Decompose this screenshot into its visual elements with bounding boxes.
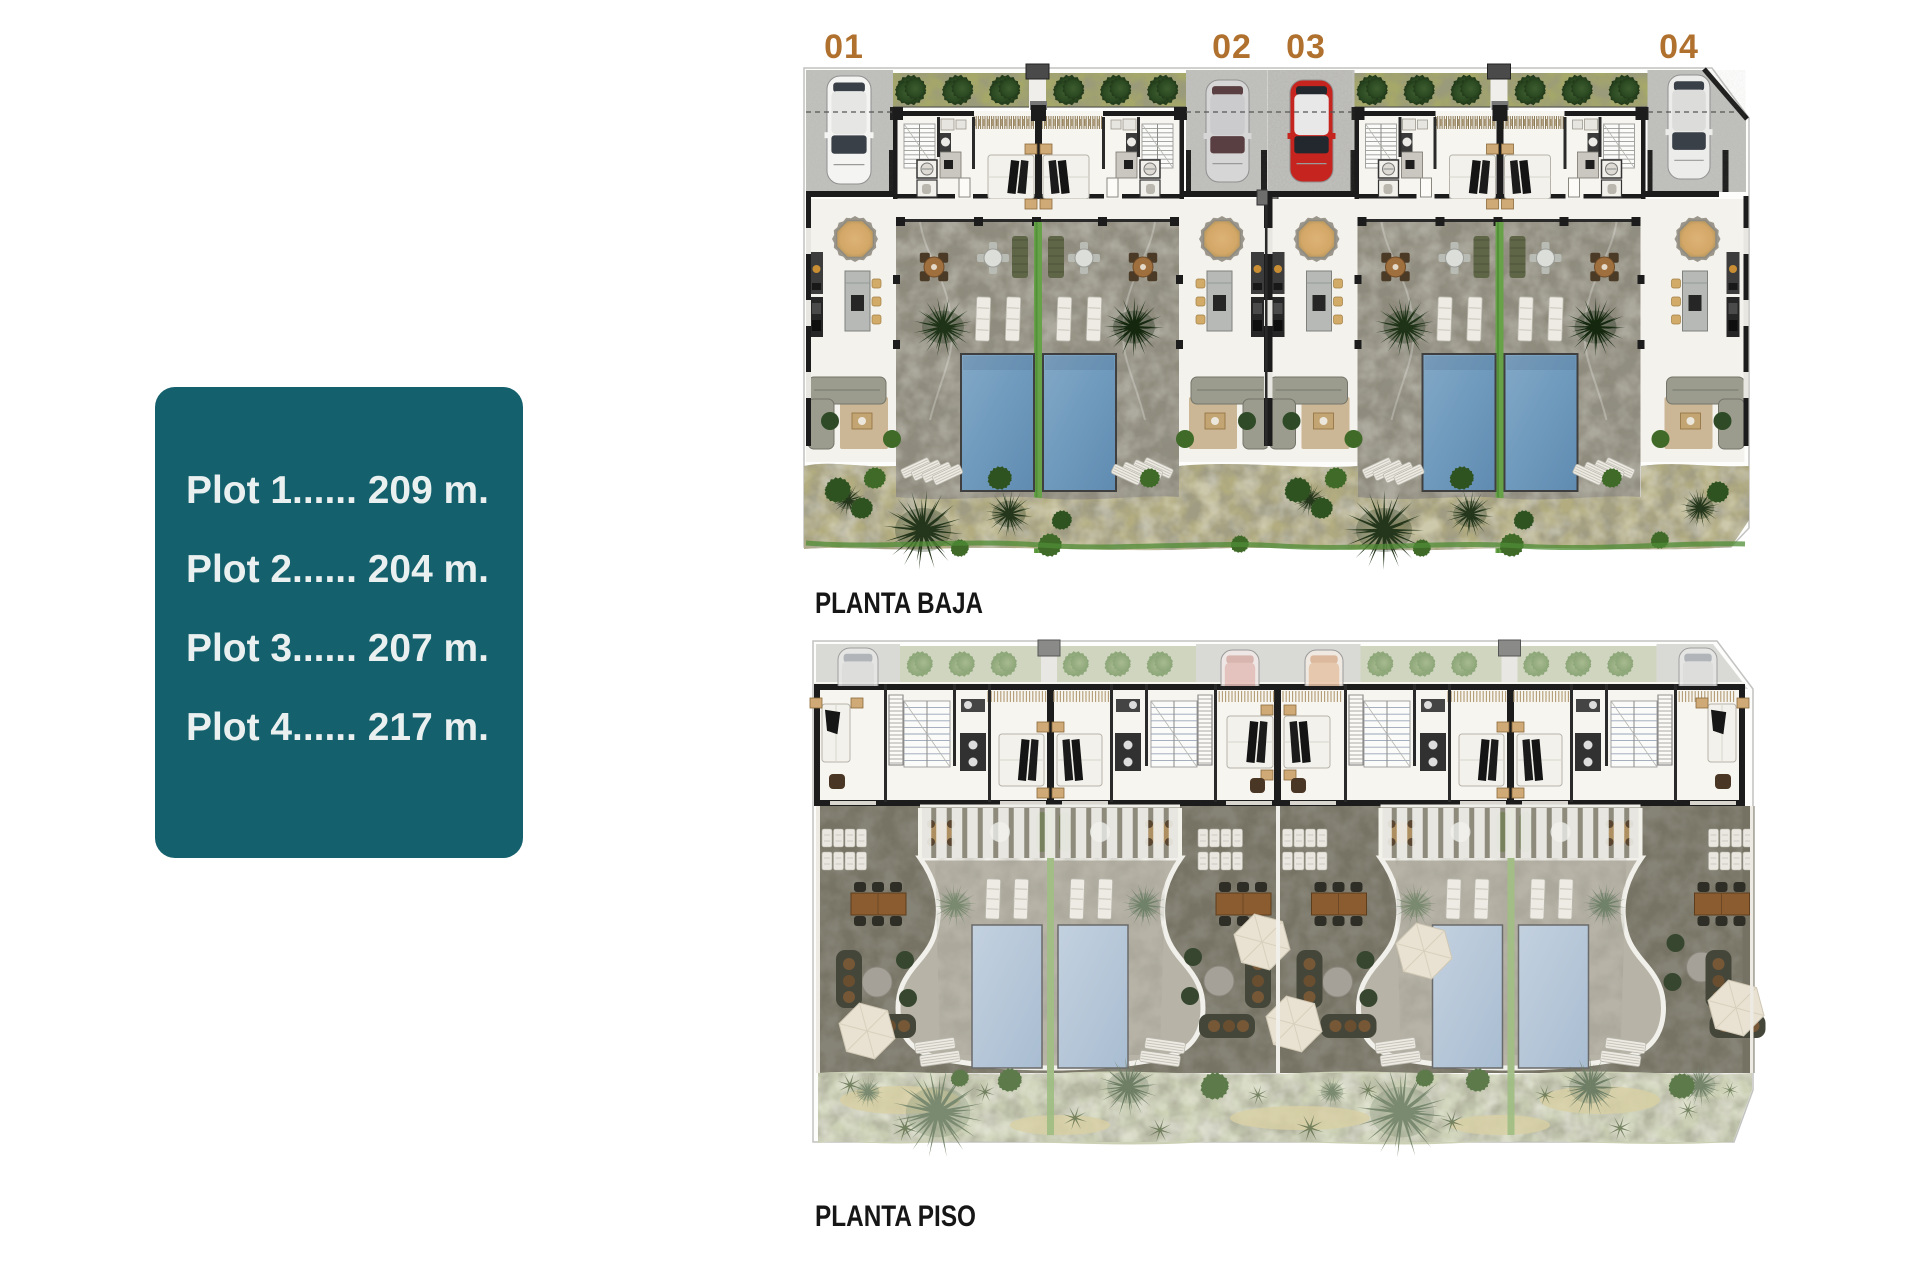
svg-text:Plot 2...... 204 m.: Plot 2...... 204 m. bbox=[186, 548, 489, 591]
svg-text:PLANTA BAJA: PLANTA BAJA bbox=[815, 587, 983, 620]
svg-text:01: 01 bbox=[824, 28, 864, 66]
svg-text:Plot 3...... 207 m.: Plot 3...... 207 m. bbox=[186, 627, 489, 670]
svg-text:Plot 1...... 209 m.: Plot 1...... 209 m. bbox=[186, 469, 489, 512]
svg-text:Plot 4...... 217 m.: Plot 4...... 217 m. bbox=[186, 706, 489, 749]
svg-text:PLANTA PISO: PLANTA PISO bbox=[815, 1200, 976, 1233]
svg-text:04: 04 bbox=[1659, 28, 1699, 66]
svg-text:03: 03 bbox=[1286, 28, 1326, 66]
svg-text:02: 02 bbox=[1212, 28, 1252, 66]
